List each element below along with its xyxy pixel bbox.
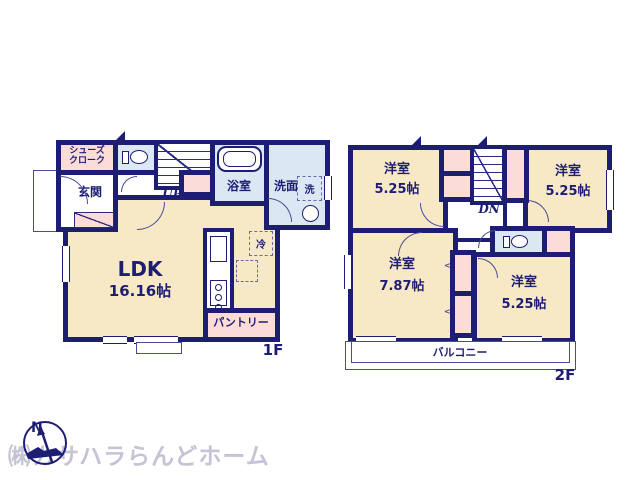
shoes-closet-label: シューズ クローク xyxy=(58,146,116,167)
cupboard-box xyxy=(236,260,258,282)
room-2f-br-name: 洋室 xyxy=(478,276,570,291)
pantry-label: パントリー xyxy=(206,317,276,330)
vent-icon-1f xyxy=(116,131,125,140)
room-2f-tr-name: 洋室 xyxy=(527,165,609,180)
window xyxy=(324,176,332,200)
washbasin-icon xyxy=(302,205,319,222)
window xyxy=(103,336,127,344)
compass-north-label: N xyxy=(31,420,43,436)
balcony-label: バルコニー xyxy=(400,347,520,360)
toilet-2f-bowl-icon xyxy=(511,235,528,248)
room-2f-bl-size: 7.87帖 xyxy=(352,280,452,295)
laundry-box: 洗 xyxy=(297,176,322,201)
terrace-step xyxy=(136,342,182,354)
closet-2f xyxy=(502,145,529,203)
floorplan-canvas: 玄関 シューズ クローク UP 浴室 洗面 洗 LDK 16.16帖 冷 パント… xyxy=(0,0,640,480)
window xyxy=(62,246,70,282)
ldk-name-label: LDK xyxy=(80,258,200,281)
vent-icon-2f xyxy=(478,136,487,145)
fridge-box: 冷 xyxy=(249,231,273,256)
bathroom-label: 浴室 xyxy=(214,180,264,194)
window xyxy=(606,170,614,210)
room-2f-tl-size: 5.25帖 xyxy=(352,183,442,198)
floor1-label: 1F xyxy=(256,342,290,359)
kitchen-sink-icon xyxy=(210,236,227,262)
shoes-closet-line2: クローク xyxy=(69,156,105,166)
ldk-size-label: 16.16帖 xyxy=(80,283,200,300)
shoes-closet-line1: シューズ xyxy=(69,146,105,156)
room-2f-br-size: 5.25帖 xyxy=(478,298,570,313)
toilet-2f-tank-icon xyxy=(503,236,510,248)
window xyxy=(344,255,352,289)
bathtub-icon xyxy=(217,146,262,172)
floor2-label: 2F xyxy=(548,367,582,384)
room-2f-tl-name: 洋室 xyxy=(352,163,442,178)
toilet-1f-bowl-icon xyxy=(130,150,148,164)
entrance-step xyxy=(74,212,114,228)
toilet-1f-door-arc xyxy=(121,176,137,192)
vent-icon-2f xyxy=(412,136,421,145)
folding-door-icon: < xyxy=(444,308,451,316)
stove-icon xyxy=(210,280,227,306)
room-2f-bl-name: 洋室 xyxy=(352,258,452,273)
room-2f-tr-size: 5.25帖 xyxy=(527,185,609,200)
folding-door-icon: < xyxy=(444,262,451,270)
compass-icon: N xyxy=(14,410,76,472)
toilet-1f-tank-icon xyxy=(122,151,129,164)
laundry-label: 洗 xyxy=(305,181,315,196)
stairs-down-label: DN xyxy=(472,203,506,217)
fridge-label: 冷 xyxy=(256,236,266,251)
